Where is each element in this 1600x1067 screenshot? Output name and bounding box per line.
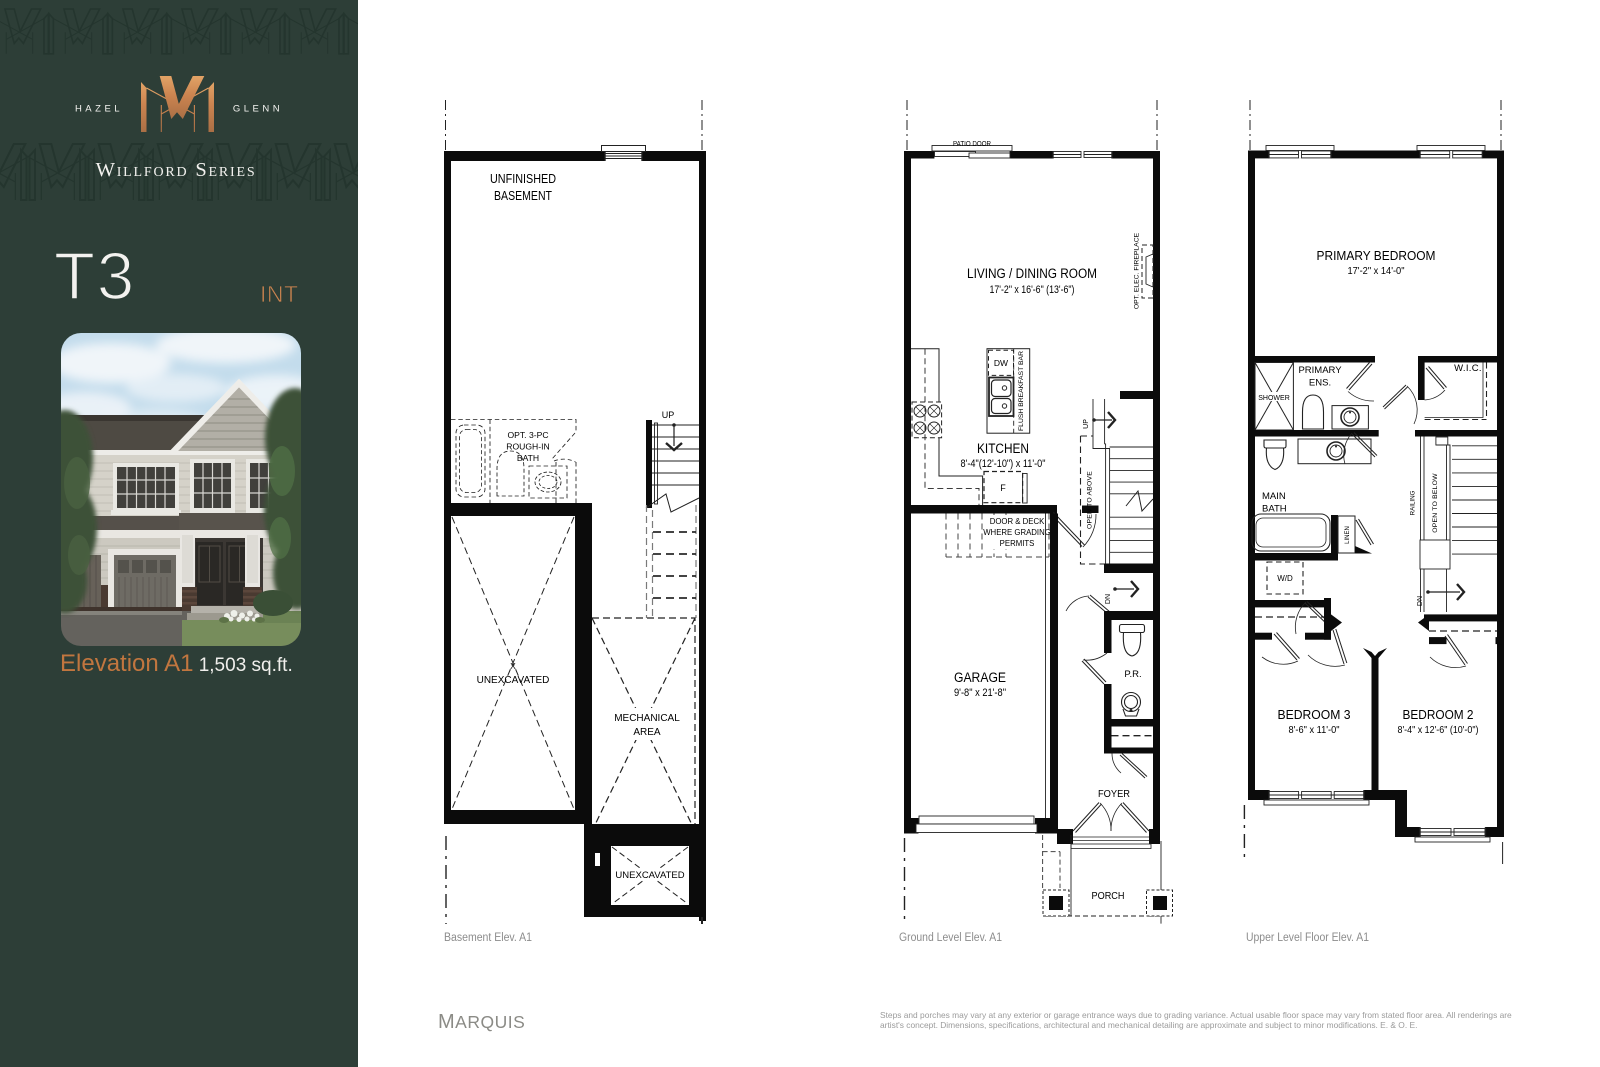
- svg-text:LINEN: LINEN: [1345, 526, 1351, 544]
- svg-text:MECHANICAL: MECHANICAL: [614, 713, 680, 724]
- svg-text:SHOWER: SHOWER: [1258, 395, 1290, 402]
- svg-text:GARAGE: GARAGE: [954, 670, 1006, 685]
- svg-text:P.R.: P.R.: [1124, 669, 1141, 680]
- svg-text:BATH: BATH: [1262, 504, 1287, 515]
- svg-text:F: F: [1000, 483, 1006, 493]
- svg-text:W.I.C.: W.I.C.: [1454, 363, 1482, 374]
- svg-text:BASEMENT: BASEMENT: [494, 189, 552, 203]
- svg-text:GLENN: GLENN: [233, 104, 283, 115]
- svg-text:UNEXCAVATED: UNEXCAVATED: [477, 675, 550, 686]
- svg-text:DOOR & DECK: DOOR & DECK: [990, 517, 1045, 526]
- svg-text:FOYER: FOYER: [1098, 788, 1130, 800]
- svg-text:PRIMARY: PRIMARY: [1298, 365, 1342, 376]
- svg-text:9'-8" x 21'-8": 9'-8" x 21'-8": [954, 687, 1006, 699]
- svg-text:BEDROOM 3: BEDROOM 3: [1278, 707, 1351, 722]
- svg-text:8'-4"(12'-10") x 11'-0": 8'-4"(12'-10") x 11'-0": [961, 458, 1046, 470]
- svg-text:17'-2" x 16'-6" (13'-6"): 17'-2" x 16'-6" (13'-6"): [990, 284, 1075, 296]
- svg-text:WHERE GRADING: WHERE GRADING: [983, 528, 1051, 537]
- svg-text:MAIN: MAIN: [1262, 491, 1286, 502]
- svg-text:BEDROOM 2: BEDROOM 2: [1403, 707, 1474, 722]
- svg-text:OPEN TO ABOVE: OPEN TO ABOVE: [1087, 471, 1094, 529]
- svg-text:OPT. ELEC. FIREPLACE: OPT. ELEC. FIREPLACE: [1134, 232, 1141, 309]
- svg-text:X: X: [510, 661, 516, 671]
- svg-text:UP: UP: [1083, 419, 1090, 429]
- svg-text:AREA: AREA: [633, 727, 661, 738]
- svg-text:Willford Series: Willford Series: [96, 159, 257, 181]
- svg-text:ENS.: ENS.: [1309, 378, 1331, 389]
- svg-text:PATIO DOOR: PATIO DOOR: [953, 139, 991, 148]
- svg-text:Basement Elev. A1: Basement Elev. A1: [444, 932, 532, 944]
- svg-text:UP: UP: [662, 410, 675, 420]
- svg-text:Ground Level Elev. A1: Ground Level Elev. A1: [899, 932, 1002, 944]
- svg-text:OPEN TO BELOW: OPEN TO BELOW: [1432, 473, 1439, 533]
- svg-text:FLUSH BREAKFAST BAR: FLUSH BREAKFAST BAR: [1018, 351, 1025, 431]
- svg-text:W/D: W/D: [1277, 574, 1293, 583]
- svg-text:8'-4" x 12'-6" (10'-0"): 8'-4" x 12'-6" (10'-0"): [1398, 724, 1479, 736]
- svg-text:PERMITS: PERMITS: [1000, 539, 1035, 548]
- svg-text:UNFINISHED: UNFINISHED: [490, 172, 556, 186]
- svg-text:8'-6" x 11'-0": 8'-6" x 11'-0": [1289, 724, 1340, 736]
- svg-text:PRIMARY BEDROOM: PRIMARY BEDROOM: [1317, 248, 1436, 263]
- svg-text:DW: DW: [994, 358, 1008, 368]
- svg-text:ROUGH-IN: ROUGH-IN: [506, 442, 549, 452]
- svg-text:RAILING: RAILING: [1410, 490, 1417, 515]
- svg-text:Upper Level Floor Elev. A1: Upper Level Floor Elev. A1: [1246, 932, 1369, 944]
- svg-text:DN: DN: [1417, 596, 1424, 606]
- svg-text:OPT. 3-PC: OPT. 3-PC: [507, 430, 548, 440]
- svg-text:UNEXCAVATED: UNEXCAVATED: [615, 870, 684, 881]
- svg-text:HAZEL: HAZEL: [75, 104, 123, 115]
- svg-text:LIVING / DINING ROOM: LIVING / DINING ROOM: [967, 266, 1097, 281]
- svg-text:KITCHEN: KITCHEN: [977, 441, 1029, 456]
- svg-text:17'-2" x 14'-0": 17'-2" x 14'-0": [1348, 265, 1405, 277]
- svg-text:DN: DN: [1105, 594, 1112, 604]
- svg-text:PORCH: PORCH: [1092, 890, 1125, 902]
- svg-text:BATH: BATH: [517, 453, 539, 463]
